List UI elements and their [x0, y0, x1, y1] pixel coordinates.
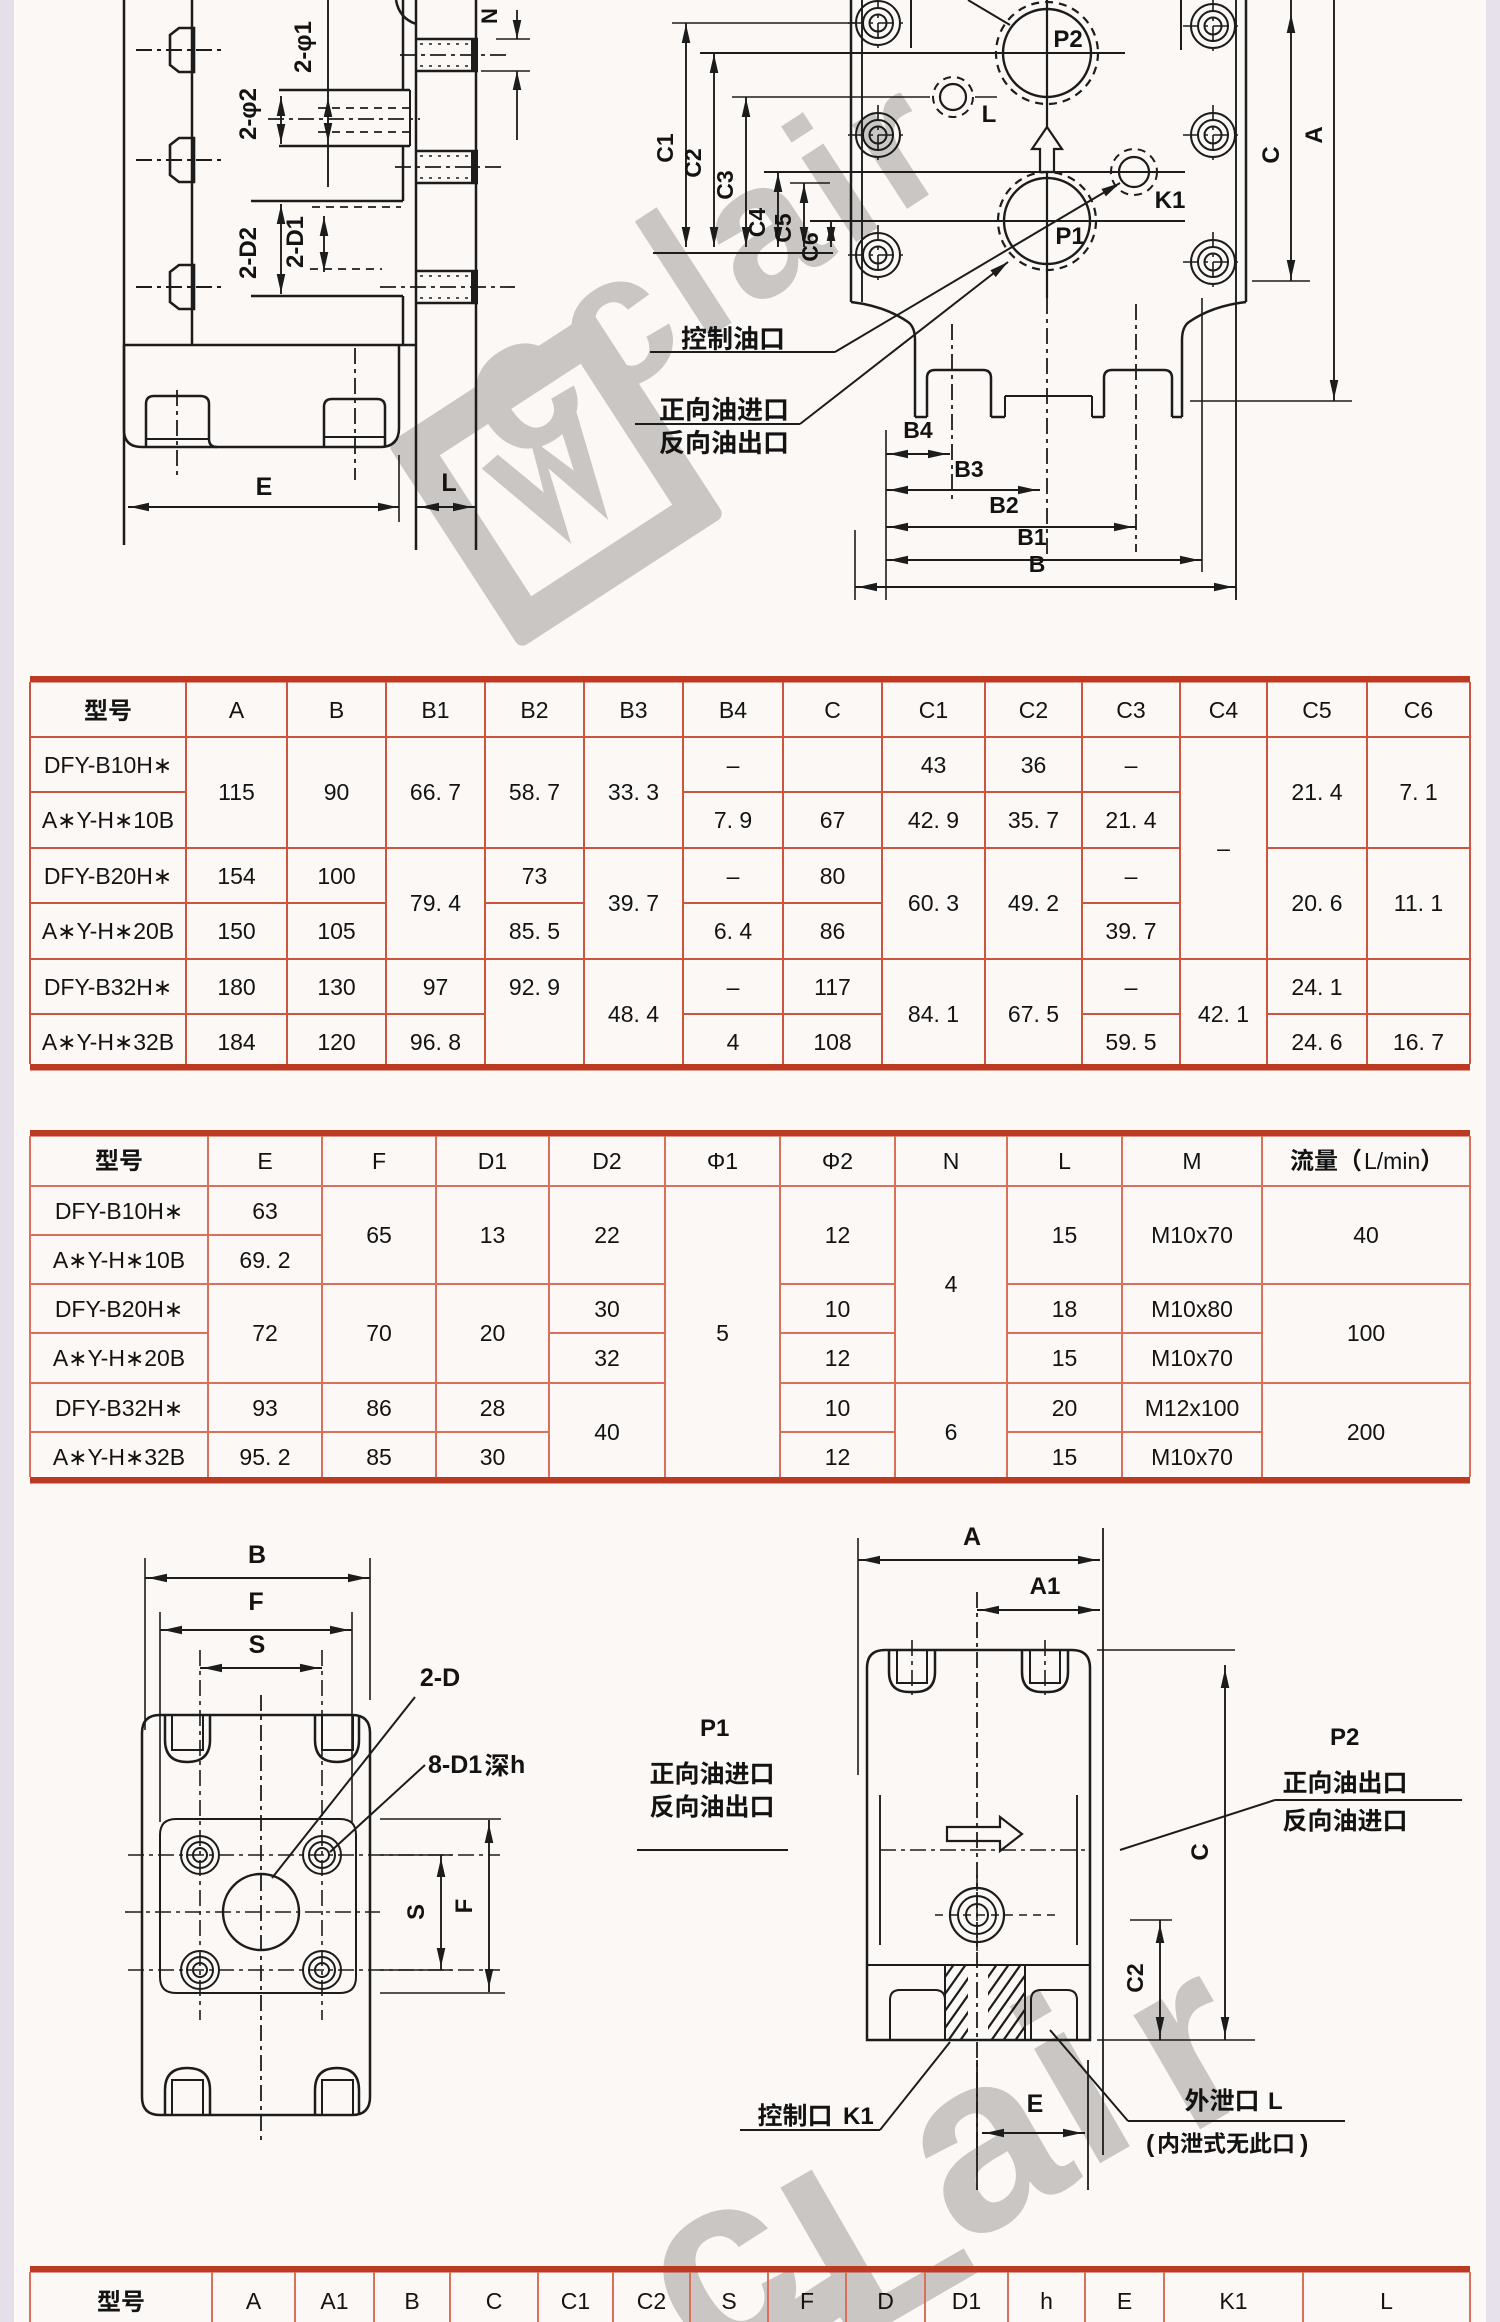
svg-text:67: 67 — [820, 807, 846, 833]
svg-text:K1: K1 — [1155, 187, 1186, 214]
svg-text:D1: D1 — [478, 1148, 507, 1174]
svg-text:2-D: 2-D — [420, 1664, 460, 1692]
svg-text:2-D2: 2-D2 — [235, 227, 262, 279]
svg-text:L: L — [441, 469, 456, 497]
svg-text:–: – — [1125, 974, 1138, 1000]
svg-text:C2: C2 — [680, 148, 706, 177]
svg-text:DFY-B32H∗: DFY-B32H∗ — [55, 1395, 183, 1421]
svg-text:B: B — [404, 2288, 419, 2314]
svg-text:2-D1: 2-D1 — [282, 216, 309, 268]
svg-text:F: F — [451, 1899, 478, 1914]
svg-text:A∗Y-H∗10B: A∗Y-H∗10B — [53, 1247, 185, 1273]
svg-text:20: 20 — [480, 1320, 506, 1346]
svg-text:B2: B2 — [989, 492, 1018, 518]
svg-text:C: C — [486, 2288, 503, 2314]
svg-text:12: 12 — [825, 1222, 851, 1248]
svg-text:B1: B1 — [1017, 524, 1047, 550]
svg-text:L: L — [1058, 1148, 1071, 1174]
svg-text:K1: K1 — [1219, 2288, 1247, 2314]
svg-text:A∗Y-H∗20B: A∗Y-H∗20B — [53, 1345, 185, 1371]
svg-text:86: 86 — [820, 918, 846, 944]
svg-text:2-φ2: 2-φ2 — [235, 88, 262, 140]
svg-text:130: 130 — [317, 974, 355, 1000]
svg-text:69. 2: 69. 2 — [239, 1247, 290, 1273]
svg-text:18: 18 — [1052, 1296, 1078, 1322]
svg-text:): ) — [1300, 2130, 1308, 2158]
svg-text:C1: C1 — [919, 697, 948, 723]
svg-text:86: 86 — [366, 1395, 392, 1421]
svg-text:D1: D1 — [952, 2288, 981, 2314]
svg-text:C2: C2 — [1019, 697, 1048, 723]
svg-text:A1: A1 — [1030, 1573, 1061, 1600]
svg-text:B: B — [1029, 551, 1046, 577]
svg-text:B1: B1 — [421, 697, 449, 723]
svg-text:E: E — [1027, 2090, 1044, 2118]
svg-text:P1: P1 — [1055, 223, 1084, 250]
svg-text:C: C — [1258, 146, 1285, 163]
svg-text:30: 30 — [480, 1444, 506, 1470]
svg-text:4: 4 — [945, 1271, 958, 1297]
svg-text:M10x80: M10x80 — [1151, 1296, 1233, 1322]
svg-text:L: L — [1268, 2088, 1283, 2115]
svg-text:6. 4: 6. 4 — [714, 918, 753, 944]
svg-text:15: 15 — [1052, 1444, 1078, 1470]
svg-text:36: 36 — [1021, 752, 1047, 778]
svg-text:20. 6: 20. 6 — [1291, 890, 1342, 916]
svg-text:154: 154 — [217, 863, 256, 889]
svg-text:A∗Y-H∗10B: A∗Y-H∗10B — [42, 807, 174, 833]
svg-text:C3: C3 — [712, 170, 738, 199]
svg-text:39. 7: 39. 7 — [1105, 918, 1156, 944]
svg-text:B3: B3 — [619, 697, 647, 723]
svg-text:120: 120 — [317, 1029, 355, 1055]
svg-text:10: 10 — [825, 1395, 851, 1421]
svg-text:97: 97 — [423, 974, 449, 1000]
svg-text:B4: B4 — [719, 697, 747, 723]
svg-text:40: 40 — [1353, 1222, 1379, 1248]
svg-text:C5: C5 — [770, 213, 796, 243]
svg-text:79. 4: 79. 4 — [410, 890, 461, 916]
svg-text:C5: C5 — [1302, 697, 1331, 723]
svg-text:–: – — [1125, 863, 1138, 889]
svg-text:DFY-B10H∗: DFY-B10H∗ — [55, 1198, 183, 1224]
svg-text:70: 70 — [366, 1320, 392, 1346]
svg-text:200: 200 — [1347, 1419, 1385, 1445]
svg-text:43: 43 — [921, 752, 947, 778]
svg-text:F: F — [248, 1588, 263, 1616]
svg-text:–: – — [727, 863, 740, 889]
svg-text:90: 90 — [324, 779, 350, 805]
svg-text:A∗Y-H∗32B: A∗Y-H∗32B — [42, 1029, 174, 1055]
svg-text:F: F — [800, 2288, 814, 2314]
svg-text:10: 10 — [825, 1296, 851, 1322]
svg-text:66. 7: 66. 7 — [410, 779, 461, 805]
svg-text:20: 20 — [1052, 1395, 1078, 1421]
svg-text:DFY-B20H∗: DFY-B20H∗ — [44, 863, 172, 889]
svg-text:P1: P1 — [700, 1715, 729, 1742]
svg-text:40: 40 — [594, 1419, 620, 1445]
svg-text:A: A — [229, 697, 245, 723]
svg-text:49. 2: 49. 2 — [1008, 890, 1059, 916]
svg-text:4: 4 — [727, 1029, 740, 1055]
svg-text:B: B — [329, 697, 344, 723]
svg-text:M10x70: M10x70 — [1151, 1345, 1233, 1371]
svg-text:M10x70: M10x70 — [1151, 1222, 1233, 1248]
svg-text:35. 7: 35. 7 — [1008, 807, 1059, 833]
svg-text:100: 100 — [317, 863, 355, 889]
svg-text:24. 6: 24. 6 — [1291, 1029, 1342, 1055]
svg-text:C6: C6 — [797, 232, 823, 261]
svg-text:16. 7: 16. 7 — [1393, 1029, 1444, 1055]
svg-text:E: E — [257, 1148, 272, 1174]
svg-text:h: h — [1040, 2288, 1053, 2314]
svg-text:95. 2: 95. 2 — [239, 1444, 290, 1470]
svg-text:108: 108 — [813, 1029, 851, 1055]
svg-text:32: 32 — [594, 1345, 620, 1371]
svg-text:B4: B4 — [903, 417, 933, 443]
svg-text:E: E — [1117, 2288, 1132, 2314]
svg-text:S: S — [249, 1631, 266, 1659]
svg-text:30: 30 — [594, 1296, 620, 1322]
svg-text:A: A — [246, 2288, 262, 2314]
svg-text:C4: C4 — [744, 208, 770, 238]
svg-text:65: 65 — [366, 1222, 392, 1248]
svg-text:C: C — [1187, 1843, 1214, 1860]
svg-text:42. 9: 42. 9 — [908, 807, 959, 833]
svg-text:73: 73 — [522, 863, 548, 889]
svg-text:A: A — [1301, 126, 1328, 143]
svg-text:63: 63 — [252, 1198, 278, 1224]
svg-text:(: ( — [1146, 2130, 1155, 2158]
svg-text:M: M — [1182, 1148, 1201, 1174]
svg-text:13: 13 — [480, 1222, 506, 1248]
svg-text:39. 7: 39. 7 — [608, 890, 659, 916]
svg-text:96. 8: 96. 8 — [410, 1029, 461, 1055]
svg-text:L: L — [1380, 2288, 1393, 2314]
svg-text:7. 1: 7. 1 — [1399, 779, 1437, 805]
svg-text:A: A — [963, 1523, 981, 1551]
svg-text:48. 4: 48. 4 — [608, 1001, 659, 1027]
svg-text:F: F — [372, 1148, 386, 1174]
svg-text:92. 9: 92. 9 — [509, 974, 560, 1000]
svg-text:80: 80 — [820, 863, 846, 889]
svg-text:72: 72 — [252, 1320, 278, 1346]
svg-text:D2: D2 — [592, 1148, 621, 1174]
svg-text:Φ2: Φ2 — [822, 1148, 853, 1174]
svg-text:28: 28 — [480, 1395, 506, 1421]
svg-text:DFY-B10H∗: DFY-B10H∗ — [44, 752, 172, 778]
svg-text:h: h — [510, 1751, 525, 1779]
svg-text:M10x70: M10x70 — [1151, 1444, 1233, 1470]
svg-text:–: – — [1217, 835, 1230, 861]
svg-text:–: – — [727, 752, 740, 778]
svg-text:C4: C4 — [1209, 697, 1239, 723]
svg-text:C: C — [824, 697, 841, 723]
svg-text:24. 1: 24. 1 — [1291, 974, 1342, 1000]
svg-text:DFY-B20H∗: DFY-B20H∗ — [55, 1296, 183, 1322]
svg-text:A∗Y-H∗32B: A∗Y-H∗32B — [53, 1444, 185, 1470]
svg-text:S: S — [403, 1904, 430, 1920]
svg-text:6: 6 — [945, 1419, 958, 1445]
svg-text:8-D1: 8-D1 — [428, 1751, 482, 1779]
svg-text:P2: P2 — [1330, 1724, 1359, 1751]
svg-text:N: N — [943, 1148, 960, 1174]
svg-text:60. 3: 60. 3 — [908, 890, 959, 916]
svg-text:115: 115 — [218, 779, 255, 805]
svg-text:67. 5: 67. 5 — [1008, 1001, 1059, 1027]
svg-text:58. 7: 58. 7 — [509, 779, 560, 805]
svg-text:–: – — [1125, 752, 1138, 778]
svg-text:E: E — [256, 473, 273, 501]
svg-text:C1: C1 — [561, 2288, 590, 2314]
svg-text:11. 1: 11. 1 — [1394, 890, 1443, 916]
svg-text:59. 5: 59. 5 — [1105, 1029, 1156, 1055]
svg-text:L/min: L/min — [1364, 1148, 1420, 1174]
svg-text:33. 3: 33. 3 — [608, 779, 659, 805]
svg-text:12: 12 — [825, 1345, 851, 1371]
svg-text:–: – — [727, 974, 740, 1000]
svg-text:C2: C2 — [637, 2288, 666, 2314]
svg-text:84. 1: 84. 1 — [908, 1001, 959, 1027]
svg-text:180: 180 — [217, 974, 255, 1000]
svg-text:15: 15 — [1052, 1345, 1078, 1371]
svg-text:42. 1: 42. 1 — [1198, 1001, 1249, 1027]
svg-text:DFY-B32H∗: DFY-B32H∗ — [44, 974, 172, 1000]
svg-text:C3: C3 — [1116, 697, 1145, 723]
svg-text:100: 100 — [1347, 1320, 1385, 1346]
svg-text:184: 184 — [217, 1029, 256, 1055]
svg-text:150: 150 — [217, 918, 255, 944]
svg-text:L: L — [982, 101, 997, 128]
svg-text:2-φ1: 2-φ1 — [290, 21, 317, 73]
svg-text:A∗Y-H∗20B: A∗Y-H∗20B — [42, 918, 174, 944]
svg-text:P2: P2 — [1053, 26, 1082, 53]
svg-text:7. 9: 7. 9 — [714, 807, 752, 833]
svg-text:B3: B3 — [954, 456, 983, 482]
svg-text:15: 15 — [1052, 1222, 1078, 1248]
svg-text:5: 5 — [716, 1320, 729, 1346]
svg-text:93: 93 — [252, 1395, 278, 1421]
svg-text:85: 85 — [366, 1444, 392, 1470]
svg-text:105: 105 — [317, 918, 355, 944]
svg-text:A1: A1 — [320, 2288, 348, 2314]
svg-text:Φ1: Φ1 — [707, 1148, 738, 1174]
svg-text:M12x100: M12x100 — [1145, 1395, 1240, 1421]
svg-text:C1: C1 — [652, 133, 678, 163]
svg-text:D: D — [877, 2288, 894, 2314]
svg-text:117: 117 — [814, 974, 851, 1000]
svg-text:B: B — [248, 1541, 266, 1569]
svg-text:S: S — [721, 2288, 736, 2314]
svg-text:K1: K1 — [843, 2103, 874, 2130]
svg-text:C6: C6 — [1404, 697, 1433, 723]
svg-text:21. 4: 21. 4 — [1105, 807, 1156, 833]
svg-text:85. 5: 85. 5 — [509, 918, 560, 944]
svg-text:B2: B2 — [520, 697, 548, 723]
svg-text:N: N — [477, 8, 502, 24]
svg-text:21. 4: 21. 4 — [1291, 779, 1342, 805]
svg-text:12: 12 — [825, 1444, 851, 1470]
svg-text:C2: C2 — [1122, 1963, 1148, 1992]
svg-text:22: 22 — [594, 1222, 620, 1248]
